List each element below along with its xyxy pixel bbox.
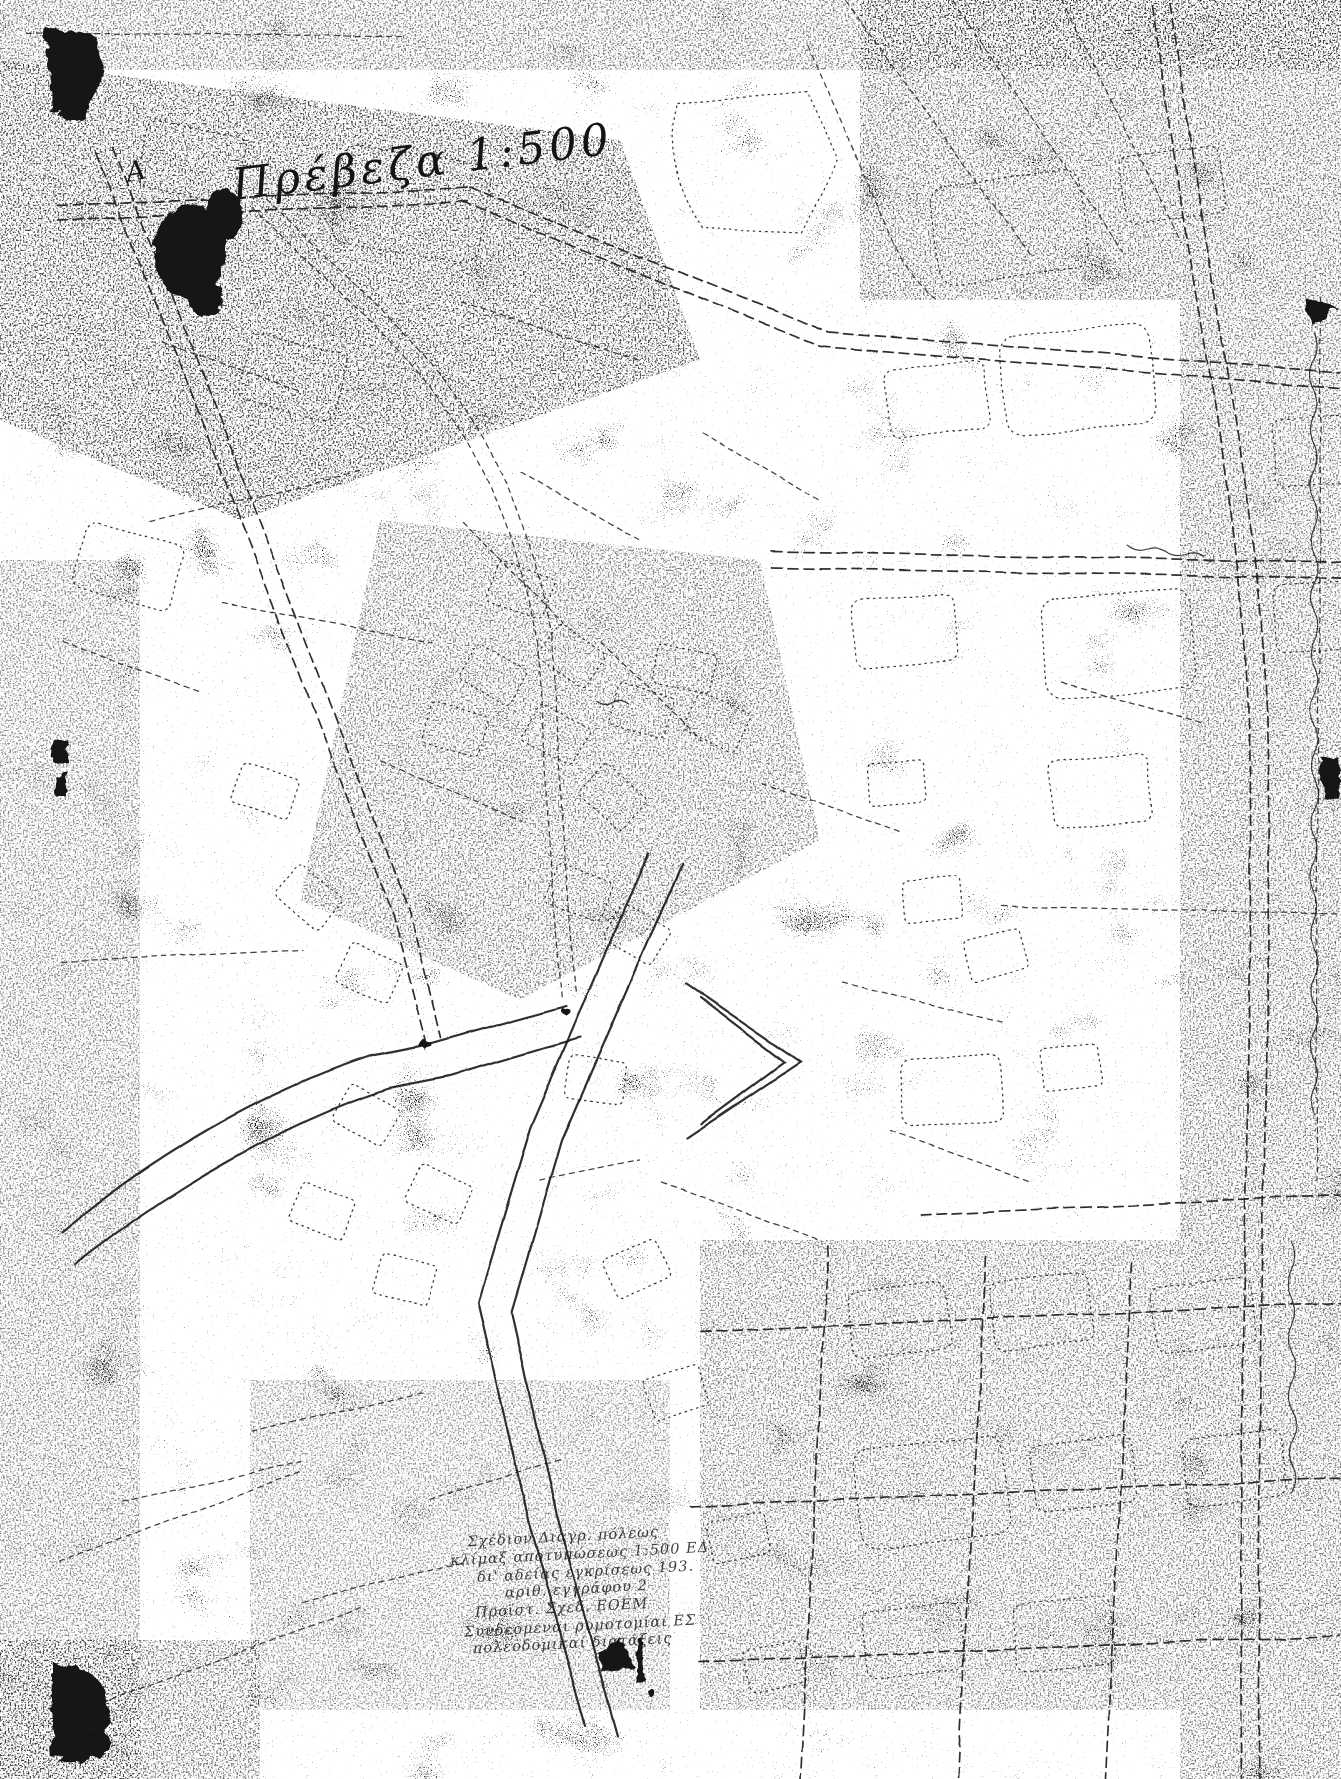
dense-patch-bottomleft [0,1640,260,1779]
town-plan-canvas: Πρέβεζα 1:500 A Σχέδιον Διαγρ. πόλεως κλ… [0,0,1341,1779]
delta-mark-dot [648,1688,656,1696]
dense-patch-leftedge [0,560,140,1779]
dense-patch-topedge [0,0,1341,70]
dense-patch-bottomright [700,1240,1180,1710]
junction-ink-spot [562,1006,570,1014]
ink-blob-bottomleft [83,1733,109,1759]
scanned-map-page: Πρέβεζα 1:500 A Σχέδιον Διαγρ. πόλεως κλ… [0,0,1341,1779]
ink-blob-rightedge [1322,758,1339,800]
ink-blob-topleft-mass [190,282,222,318]
junction-ink-spot [421,1041,431,1051]
